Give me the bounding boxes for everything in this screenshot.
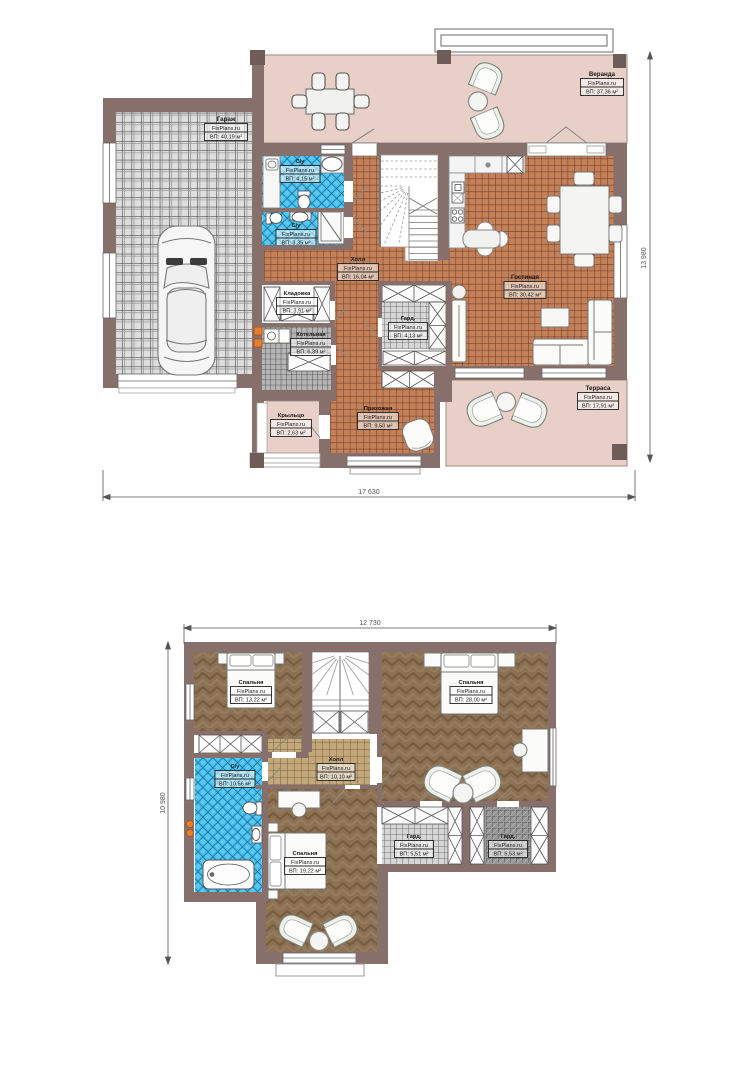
svg-text:С/у: С/у — [230, 764, 240, 770]
svg-text:FixPlans.ru: FixPlans.ru — [457, 689, 485, 695]
svg-text:ВП: 28,00 м²: ВП: 28,00 м² — [455, 698, 487, 704]
svg-text:12 730: 12 730 — [359, 620, 381, 627]
svg-text:FixPlans.ru: FixPlans.ru — [297, 341, 325, 347]
svg-text:ВП: 10,10 м²: ВП: 10,10 м² — [320, 775, 352, 781]
svg-text:ВП: 40,19 м²: ВП: 40,19 м² — [210, 135, 242, 141]
svg-text:FixPlans.ru: FixPlans.ru — [344, 266, 372, 272]
svg-text:Гард.: Гард. — [501, 834, 516, 840]
svg-text:ВП: 3,91 м²: ВП: 3,91 м² — [282, 309, 311, 315]
svg-text:FixPlans.ru: FixPlans.ru — [291, 860, 319, 866]
svg-text:ВП: 6,39 м²: ВП: 6,39 м² — [296, 350, 325, 356]
svg-text:ВП: 37,36 м²: ВП: 37,36 м² — [586, 90, 618, 96]
svg-text:Гард.: Гард. — [401, 316, 416, 322]
svg-text:FixPlans.ru: FixPlans.ru — [584, 395, 612, 401]
svg-text:С/у: С/у — [291, 223, 301, 229]
svg-text:FixPlans.ru: FixPlans.ru — [322, 766, 350, 772]
svg-text:Холл: Холл — [329, 757, 344, 763]
svg-text:ВП: 16,04 м²: ВП: 16,04 м² — [342, 275, 374, 281]
svg-text:Спальня: Спальня — [238, 680, 263, 686]
svg-text:Гараж: Гараж — [217, 116, 236, 123]
svg-text:Котельная: Котельная — [296, 332, 325, 338]
svg-text:ВП: 2,63 м²: ВП: 2,63 м² — [276, 431, 305, 437]
svg-text:Гостиная: Гостиная — [511, 274, 539, 281]
svg-text:С/у: С/у — [295, 159, 305, 165]
svg-text:FixPlans.ru: FixPlans.ru — [494, 843, 522, 849]
svg-text:FixPlans.ru: FixPlans.ru — [286, 168, 314, 174]
svg-text:ВП: 5,53 м²: ВП: 5,53 м² — [493, 852, 522, 858]
svg-text:13 980: 13 980 — [641, 247, 648, 269]
svg-text:Гард.: Гард. — [407, 834, 422, 840]
svg-text:FixPlans.ru: FixPlans.ru — [282, 232, 310, 238]
svg-text:FixPlans.ru: FixPlans.ru — [221, 773, 249, 779]
svg-text:ВП: 30,42 м²: ВП: 30,42 м² — [509, 293, 541, 299]
svg-text:Веранда: Веранда — [589, 71, 616, 78]
svg-text:FixPlans.ru: FixPlans.ru — [588, 81, 616, 87]
svg-text:FixPlans.ru: FixPlans.ru — [283, 300, 311, 306]
svg-text:Крыльцо: Крыльцо — [278, 413, 305, 419]
svg-text:Кладовка: Кладовка — [284, 291, 311, 297]
svg-text:FixPlans.ru: FixPlans.ru — [400, 843, 428, 849]
svg-text:10 980: 10 980 — [160, 792, 167, 814]
svg-text:ВП: 10,56 м²: ВП: 10,56 м² — [219, 782, 251, 788]
svg-text:Спальня: Спальня — [292, 851, 317, 857]
svg-text:ВП: 5,51 м²: ВП: 5,51 м² — [399, 852, 428, 858]
svg-text:Прихожая: Прихожая — [364, 406, 393, 412]
svg-text:FixPlans.ru: FixPlans.ru — [277, 422, 305, 428]
svg-text:Спальня: Спальня — [458, 680, 483, 686]
svg-text:ВП: 4,15 м²: ВП: 4,15 м² — [285, 177, 314, 183]
svg-text:FixPlans.ru: FixPlans.ru — [212, 126, 240, 132]
svg-text:FixPlans.ru: FixPlans.ru — [511, 284, 539, 290]
svg-text:Холл: Холл — [351, 257, 366, 263]
svg-text:ВП: 9,50 м²: ВП: 9,50 м² — [363, 424, 392, 430]
svg-text:ВП: 4,13 м²: ВП: 4,13 м² — [393, 334, 422, 340]
svg-text:FixPlans.ru: FixPlans.ru — [394, 325, 422, 331]
svg-text:17 630: 17 630 — [358, 489, 380, 496]
svg-text:Терраса: Терраса — [586, 385, 611, 392]
svg-text:FixPlans.ru: FixPlans.ru — [364, 415, 392, 421]
svg-text:ВП: 19,22 м²: ВП: 19,22 м² — [289, 869, 321, 875]
svg-text:ВП: 17,91 м²: ВП: 17,91 м² — [582, 404, 614, 410]
svg-text:ВП: 13,22 м²: ВП: 13,22 м² — [235, 698, 267, 704]
svg-text:FixPlans.ru: FixPlans.ru — [237, 689, 265, 695]
